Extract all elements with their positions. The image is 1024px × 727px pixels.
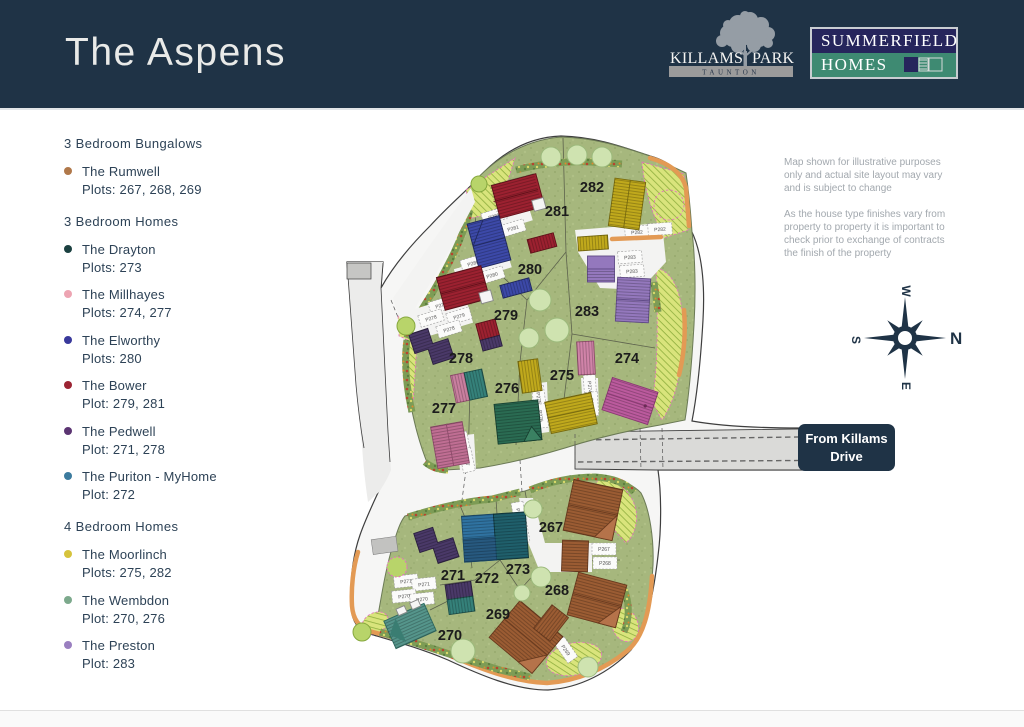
svg-text:278: 278 bbox=[449, 351, 473, 367]
svg-text:P271: P271 bbox=[400, 578, 412, 585]
svg-text:P270: P270 bbox=[398, 593, 410, 600]
svg-text:P283: P283 bbox=[626, 269, 638, 276]
svg-text:276: 276 bbox=[495, 381, 519, 397]
svg-text:P271: P271 bbox=[418, 581, 430, 588]
svg-text:268: 268 bbox=[545, 583, 569, 599]
svg-text:272: 272 bbox=[475, 571, 499, 587]
svg-text:P274: P274 bbox=[586, 381, 593, 393]
svg-text:P283: P283 bbox=[624, 255, 636, 262]
svg-text:P282: P282 bbox=[654, 227, 666, 234]
svg-text:274: 274 bbox=[615, 351, 639, 367]
svg-text:P267: P267 bbox=[598, 547, 610, 553]
svg-text:281: 281 bbox=[545, 204, 569, 220]
svg-text:P268: P268 bbox=[599, 561, 611, 567]
svg-text:S: S bbox=[849, 336, 863, 344]
svg-text:271: 271 bbox=[441, 568, 465, 584]
svg-text:273: 273 bbox=[506, 562, 530, 578]
svg-text:E: E bbox=[899, 382, 913, 390]
svg-text:N: N bbox=[950, 329, 962, 348]
svg-text:283: 283 bbox=[575, 304, 599, 320]
svg-text:277: 277 bbox=[432, 401, 456, 417]
svg-text:267: 267 bbox=[539, 520, 563, 536]
svg-text:W: W bbox=[899, 285, 913, 297]
svg-text:P282: P282 bbox=[631, 230, 643, 237]
svg-text:269: 269 bbox=[486, 607, 510, 623]
svg-text:270: 270 bbox=[438, 628, 462, 644]
svg-text:275: 275 bbox=[550, 368, 574, 384]
svg-text:282: 282 bbox=[580, 180, 604, 196]
svg-text:279: 279 bbox=[494, 308, 518, 324]
svg-text:280: 280 bbox=[518, 262, 542, 278]
